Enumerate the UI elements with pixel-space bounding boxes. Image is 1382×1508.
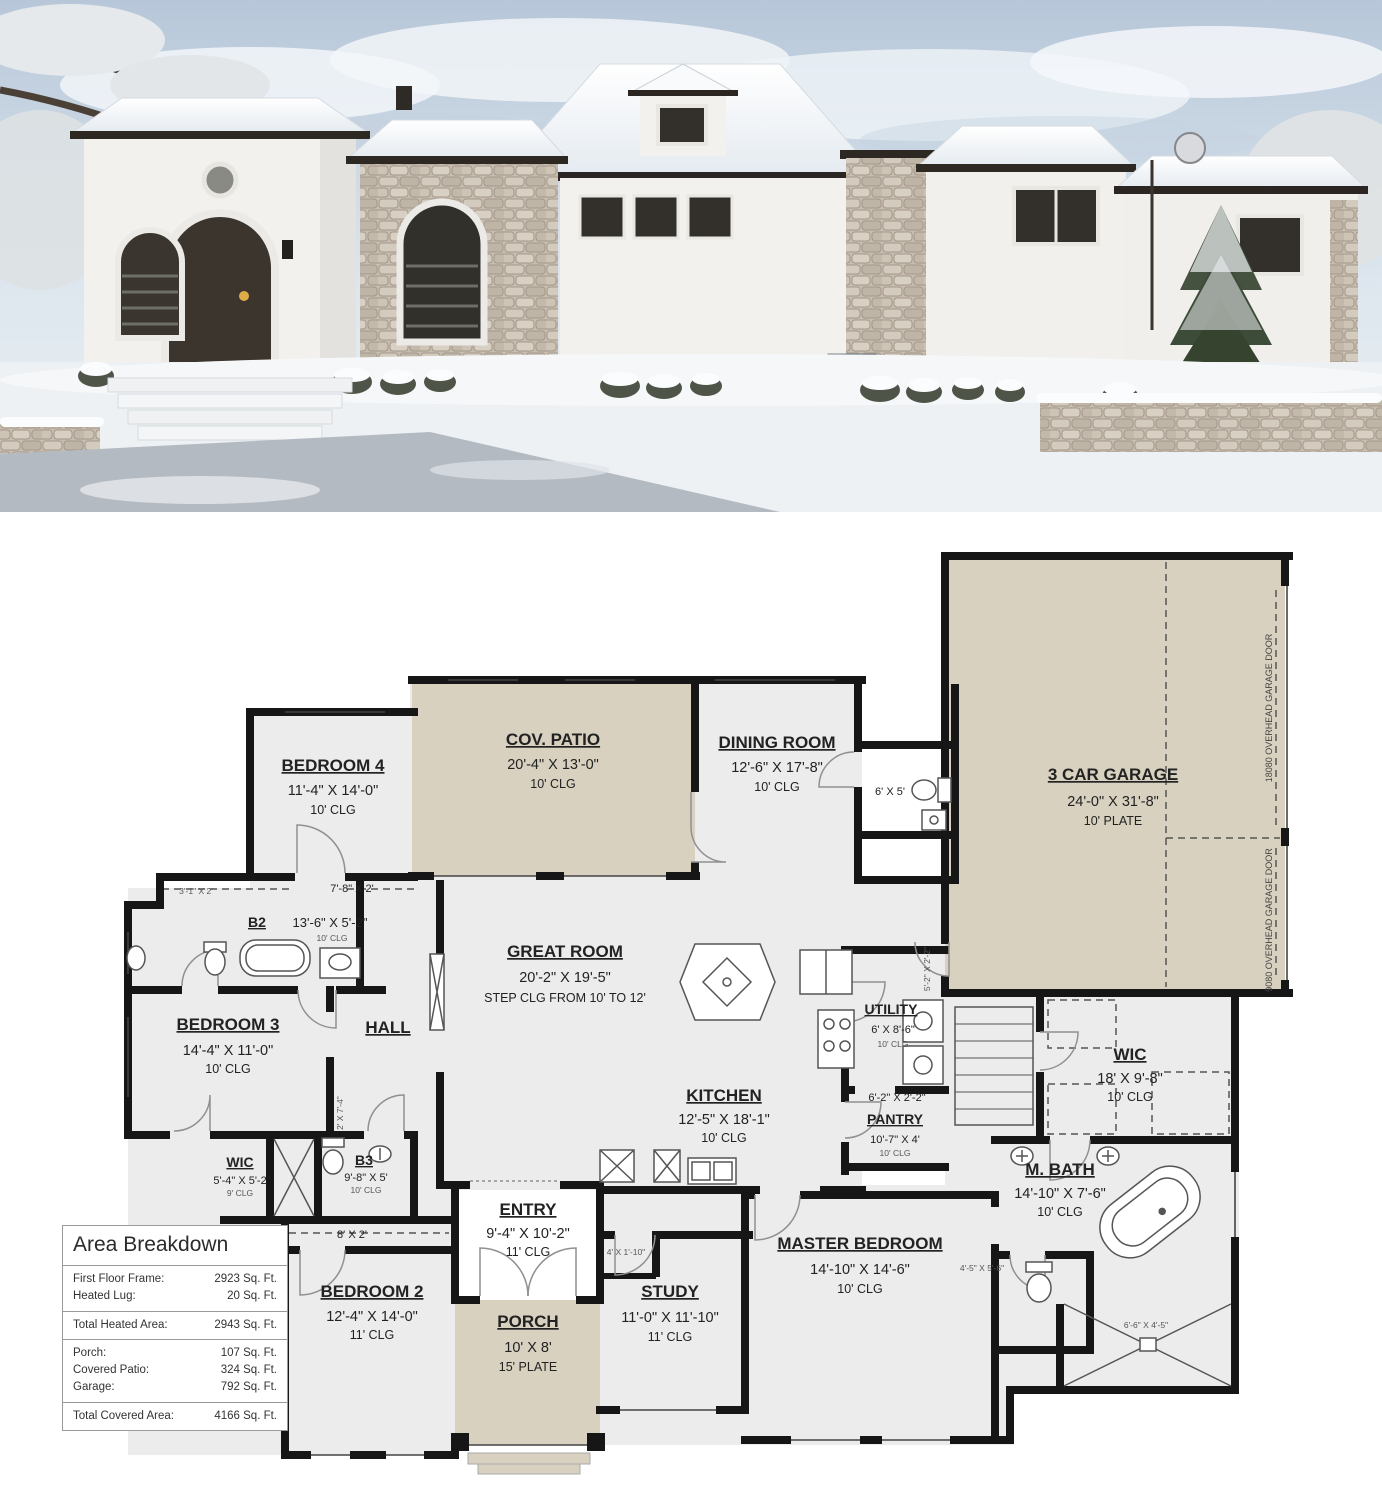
svg-text:10' CLG: 10' CLG xyxy=(837,1282,882,1296)
area-breakdown-table: Area Breakdown First Floor Frame: 2923 S… xyxy=(62,1225,288,1431)
svg-text:10' CLG: 10' CLG xyxy=(878,1039,909,1049)
sink xyxy=(329,954,351,970)
room-label-wic-left: WIC xyxy=(226,1154,253,1170)
svg-text:12'-4" X 14'-0": 12'-4" X 14'-0" xyxy=(326,1309,418,1325)
svg-text:9'-4" X 10'-2": 9'-4" X 10'-2" xyxy=(486,1226,570,1242)
svg-text:10'-7" X 4': 10'-7" X 4' xyxy=(870,1134,920,1146)
closet-dim: 6'-2" X 2'-2" xyxy=(868,1092,925,1104)
area-breakdown-section: Porch: 107 Sq. Ft. Covered Patio: 324 Sq… xyxy=(63,1340,287,1403)
house-photo xyxy=(0,0,1382,512)
toilet xyxy=(912,780,936,800)
range xyxy=(818,1010,854,1068)
area-breakdown-section: First Floor Frame: 2923 Sq. Ft. Heated L… xyxy=(63,1266,287,1312)
room-label-bedroom3: BEDROOM 3 xyxy=(177,1015,280,1034)
svg-text:11' CLG: 11' CLG xyxy=(506,1245,551,1259)
table-row: Porch: 107 Sq. Ft. xyxy=(73,1345,277,1362)
svg-text:9' CLG: 9' CLG xyxy=(227,1188,253,1198)
wc-dim: 4'-5" X 5'-6" xyxy=(960,1263,1004,1273)
toilet-tank xyxy=(1026,1262,1052,1272)
garage-door-label: 9080 OVERHEAD GARAGE DOOR xyxy=(1264,848,1274,992)
svg-text:20'-4" X 13'-0": 20'-4" X 13'-0" xyxy=(507,757,599,773)
svg-text:12'-5" X 18'-1": 12'-5" X 18'-1" xyxy=(678,1112,770,1128)
area-breakdown-title: Area Breakdown xyxy=(63,1226,287,1266)
svg-text:10' CLG: 10' CLG xyxy=(880,1148,911,1158)
room-label-pantry: PANTRY xyxy=(867,1111,924,1127)
sink xyxy=(127,946,145,970)
area-breakdown-section: Total Covered Area: 4166 Sq. Ft. xyxy=(63,1403,287,1430)
niche-dim: 5'-2" X 2'-2" xyxy=(922,947,932,991)
toilet-tank xyxy=(322,1138,344,1147)
closet-dim: 7'-8" X 2' xyxy=(330,883,374,895)
table-row: Total Covered Area: 4166 Sq. Ft. xyxy=(73,1408,277,1425)
svg-text:10' CLG: 10' CLG xyxy=(1107,1090,1152,1104)
svg-text:11'-0" X 11'-10": 11'-0" X 11'-10" xyxy=(621,1310,719,1326)
closet-dim: 8' X 2' xyxy=(337,1229,367,1241)
svg-text:11' CLG: 11' CLG xyxy=(350,1328,395,1342)
svg-text:5'-4" X 5'-2": 5'-4" X 5'-2" xyxy=(213,1175,270,1187)
room-label-hall: HALL xyxy=(365,1018,410,1037)
room-label-bedroom2: BEDROOM 2 xyxy=(321,1282,424,1301)
room-label-cov-patio: COV. PATIO xyxy=(506,730,600,749)
closet-dim: 4' X 1'-10" xyxy=(607,1247,645,1257)
table-row: Total Heated Area: 2943 Sq. Ft. xyxy=(73,1317,277,1334)
room-label-garage: 3 CAR GARAGE xyxy=(1048,765,1178,784)
table-row: First Floor Frame: 2923 Sq. Ft. xyxy=(73,1271,277,1288)
table-row: Covered Patio: 324 Sq. Ft. xyxy=(73,1362,277,1379)
svg-text:10' CLG: 10' CLG xyxy=(310,803,355,817)
room-label-porch: PORCH xyxy=(497,1312,558,1331)
svg-text:10' CLG: 10' CLG xyxy=(754,780,799,794)
svg-text:9'-8" X 5': 9'-8" X 5' xyxy=(344,1172,388,1184)
svg-text:20'-2" X 19'-5": 20'-2" X 19'-5" xyxy=(519,970,611,986)
toilet xyxy=(205,949,225,975)
svg-text:14'-10" X 7'-6": 14'-10" X 7'-6" xyxy=(1014,1186,1106,1202)
room-label-study: STUDY xyxy=(641,1282,699,1301)
lantern xyxy=(282,240,293,259)
room-label-b3: B3 xyxy=(355,1152,373,1168)
svg-text:10' X 8': 10' X 8' xyxy=(504,1340,552,1356)
room-label-dining: DINING ROOM xyxy=(718,733,835,752)
svg-text:24'-0" X 31'-8": 24'-0" X 31'-8" xyxy=(1067,794,1159,810)
linen-dim: 2' X 7'-4" xyxy=(335,1096,345,1130)
toilet xyxy=(1027,1274,1051,1302)
page: BEDROOM 4 11'-4" X 14'-0" 10' CLG COV. P… xyxy=(0,0,1382,1508)
stone-wall xyxy=(1040,400,1382,452)
svg-text:12'-6" X 17'-8": 12'-6" X 17'-8" xyxy=(731,760,823,776)
room-label-bedroom4: BEDROOM 4 xyxy=(282,756,386,775)
svg-text:6' X 8'-6": 6' X 8'-6" xyxy=(871,1024,915,1036)
room-label-utility: UTILITY xyxy=(865,1001,919,1017)
svg-text:10' CLG: 10' CLG xyxy=(530,777,575,791)
svg-text:10' PLATE: 10' PLATE xyxy=(1084,814,1142,828)
svg-text:13'-6" X 5'-2": 13'-6" X 5'-2" xyxy=(293,915,368,930)
shower-dim: 6'-6" X 4'-5" xyxy=(1124,1320,1168,1330)
svg-text:14'-4" X 11'-0": 14'-4" X 11'-0" xyxy=(183,1043,274,1059)
svg-text:18' X 9'-8": 18' X 9'-8" xyxy=(1097,1071,1163,1087)
garage-door-label: 18080 OVERHEAD GARAGE DOOR xyxy=(1264,633,1274,782)
toilet-tank xyxy=(938,778,951,802)
svg-text:STEP CLG FROM 10' TO 12': STEP CLG FROM 10' TO 12' xyxy=(484,991,646,1005)
toilet xyxy=(323,1150,343,1174)
table-row: Heated Lug: 20 Sq. Ft. xyxy=(73,1288,277,1305)
svg-text:10' CLG: 10' CLG xyxy=(701,1131,746,1145)
svg-text:10' CLG: 10' CLG xyxy=(351,1185,382,1195)
room-label-mbath: M. BATH xyxy=(1025,1160,1095,1179)
foreground-snow xyxy=(0,354,1382,512)
room-label-kitchen: KITCHEN xyxy=(686,1086,762,1105)
room-label-wic: WIC xyxy=(1113,1045,1146,1064)
satellite-dish xyxy=(1175,133,1205,163)
house-photo-art xyxy=(0,0,1382,512)
svg-text:11' CLG: 11' CLG xyxy=(648,1330,693,1344)
closet-dim: 3'-1" X 2' xyxy=(179,886,213,896)
powder-dim: 6' X 5' xyxy=(875,786,905,798)
room-label-great-room: GREAT ROOM xyxy=(507,942,623,961)
svg-text:10' CLG: 10' CLG xyxy=(1037,1205,1082,1219)
room-label-master: MASTER BEDROOM xyxy=(777,1234,942,1253)
svg-text:11'-4" X 14'-0": 11'-4" X 14'-0" xyxy=(288,783,379,799)
room-label-entry: ENTRY xyxy=(500,1200,558,1219)
svg-text:14'-10" X 14'-6": 14'-10" X 14'-6" xyxy=(810,1262,910,1278)
table-row: Garage: 792 Sq. Ft. xyxy=(73,1379,277,1396)
svg-text:15' PLATE: 15' PLATE xyxy=(499,1360,557,1374)
svg-text:10' CLG: 10' CLG xyxy=(317,933,348,943)
room-label-b2: B2 xyxy=(248,914,266,930)
area-breakdown-section: Total Heated Area: 2943 Sq. Ft. xyxy=(63,1312,287,1340)
round-window xyxy=(204,164,236,196)
svg-text:10' CLG: 10' CLG xyxy=(205,1062,250,1076)
